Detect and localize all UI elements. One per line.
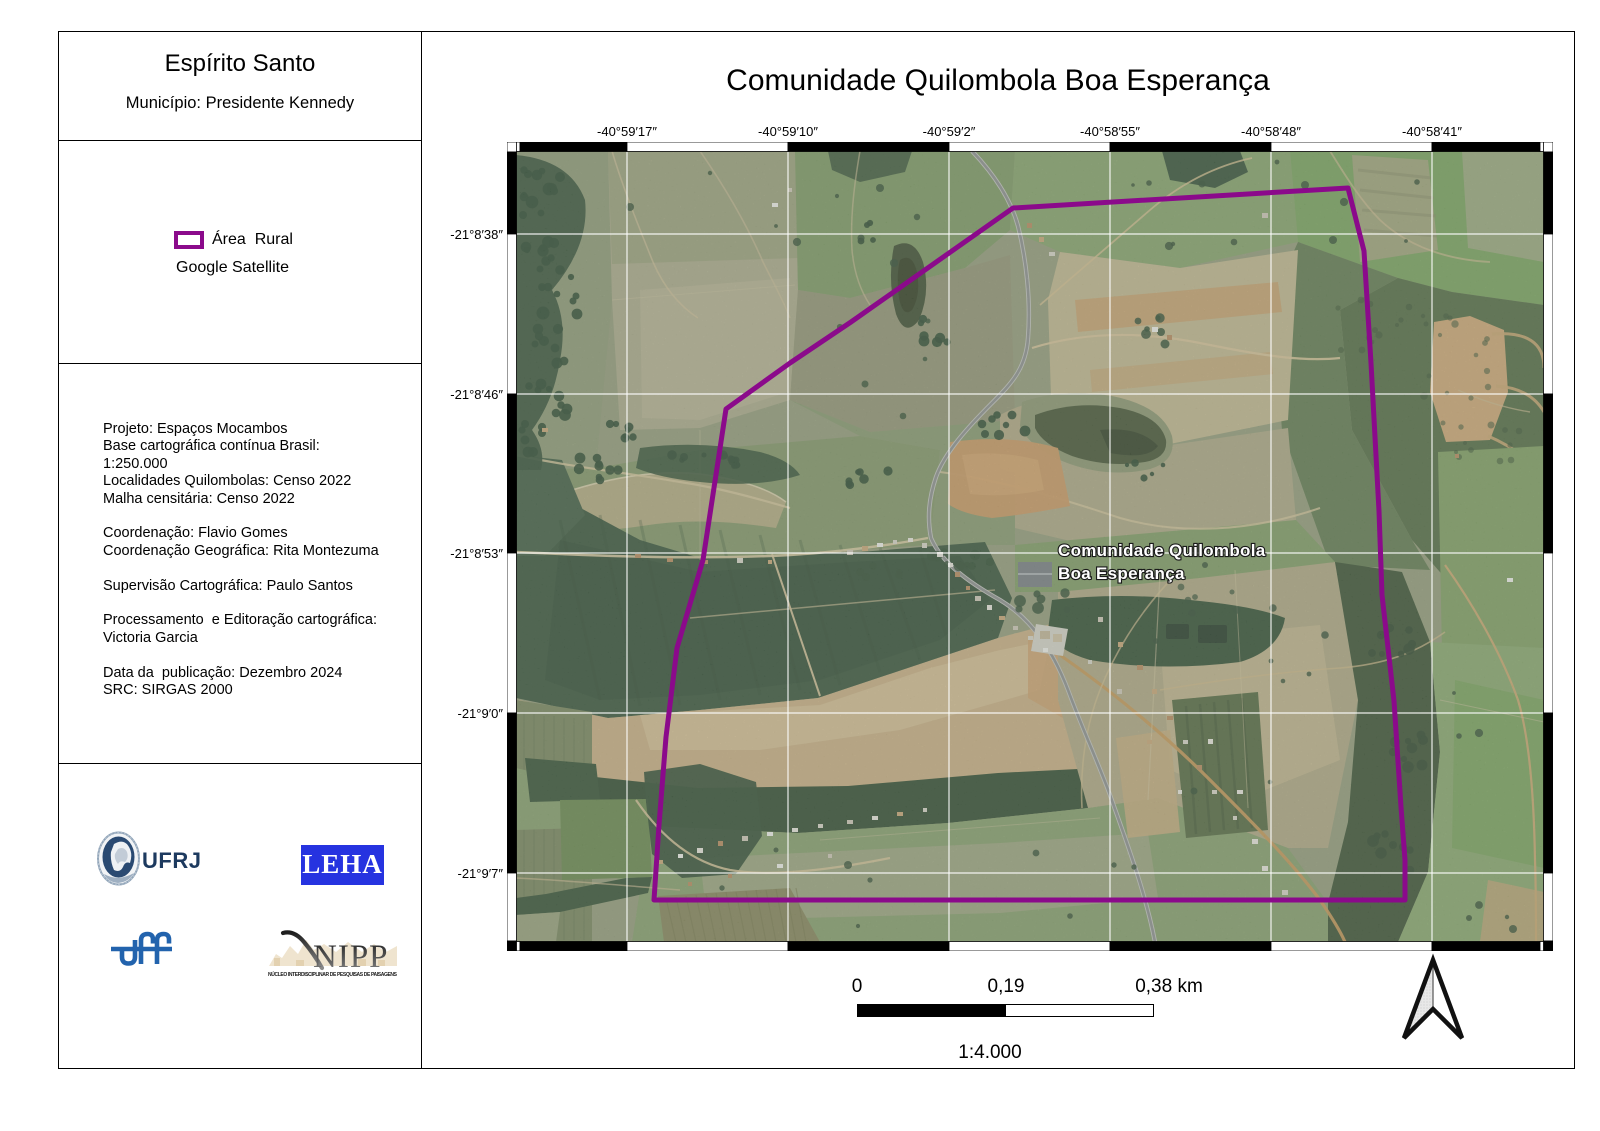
svg-text:NIPP: NIPP (313, 939, 389, 975)
svg-text:UFRJ: UFRJ (142, 848, 201, 873)
svg-text:Comunidade Quilombola: Comunidade Quilombola (1058, 541, 1266, 560)
svg-text:NÚCLEO INTERDISCIPLINAR DE PES: NÚCLEO INTERDISCIPLINAR DE PESQUISAS DE … (268, 971, 398, 978)
svg-text:Boa Esperança: Boa Esperança (1058, 564, 1185, 583)
